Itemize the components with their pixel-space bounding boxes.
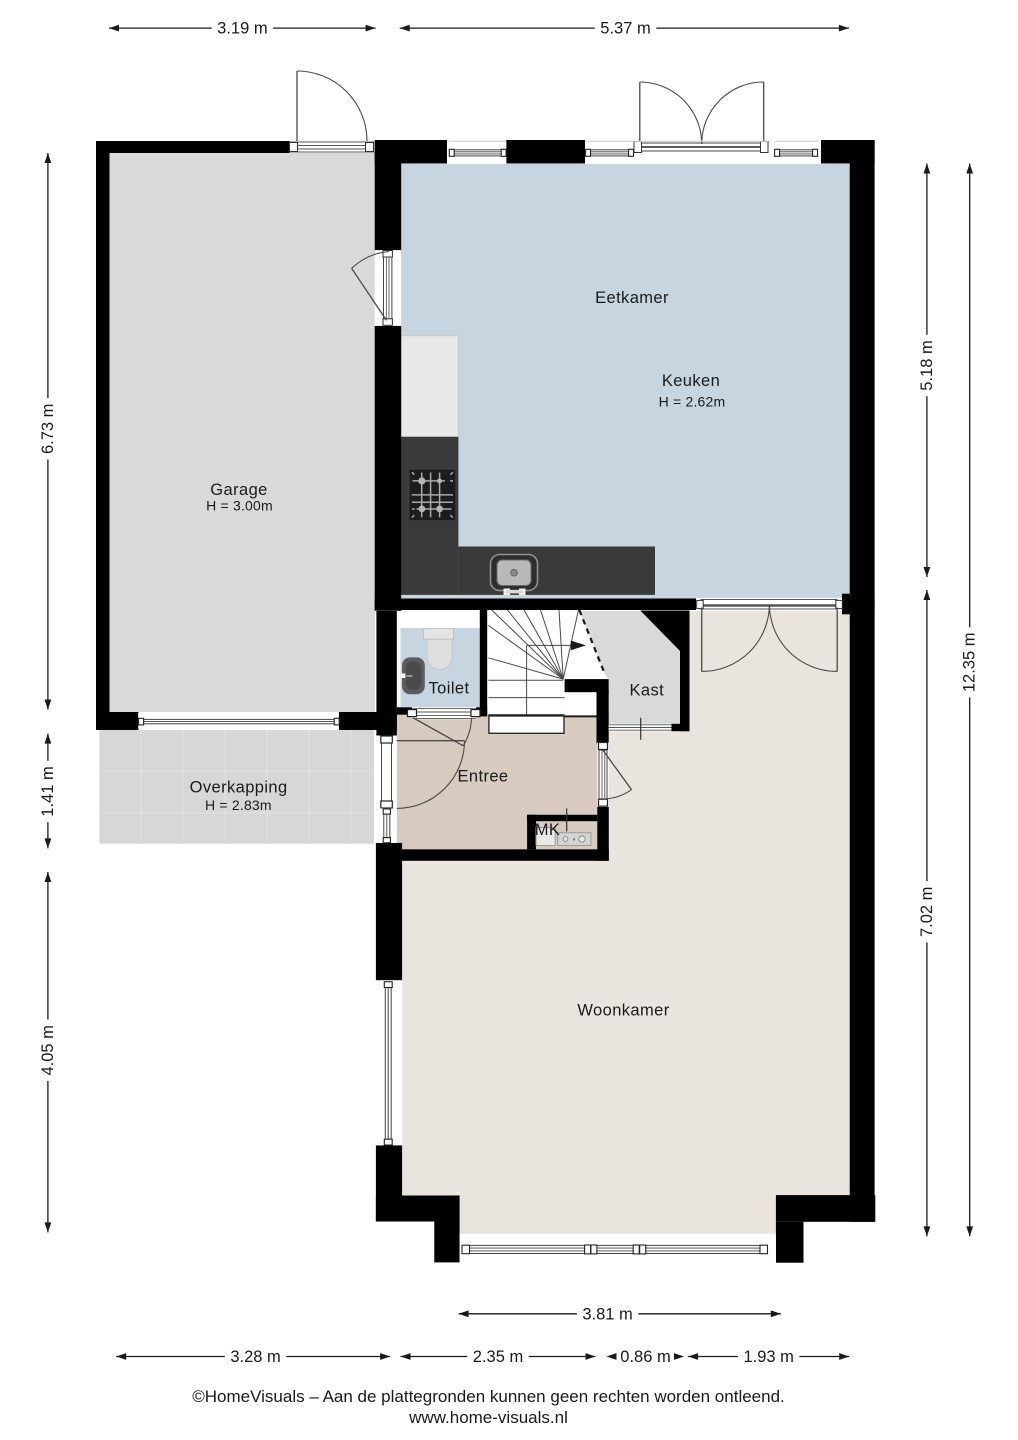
svg-text:3.81 m: 3.81 m xyxy=(582,1305,632,1323)
svg-text:Overkapping: Overkapping xyxy=(190,779,288,797)
svg-text:4.05 m: 4.05 m xyxy=(39,1025,57,1075)
svg-text:Eetkamer: Eetkamer xyxy=(595,289,669,307)
svg-text:H = 3.00m: H = 3.00m xyxy=(206,498,273,514)
svg-text:3.28 m: 3.28 m xyxy=(230,1348,280,1366)
svg-text:MK: MK xyxy=(535,821,561,839)
svg-text:2.35 m: 2.35 m xyxy=(473,1348,523,1366)
svg-text:1.93 m: 1.93 m xyxy=(743,1348,793,1366)
svg-text:6.73 m: 6.73 m xyxy=(39,404,57,454)
svg-text:5.37 m: 5.37 m xyxy=(600,20,650,38)
svg-text:Garage: Garage xyxy=(210,481,267,499)
svg-text:Toilet: Toilet xyxy=(429,680,470,698)
svg-text:H = 2.62m: H = 2.62m xyxy=(659,394,726,410)
svg-text:Kast: Kast xyxy=(629,682,664,700)
svg-text:Entree: Entree xyxy=(457,768,508,786)
svg-text:3.19 m: 3.19 m xyxy=(217,20,267,38)
svg-text:Keuken: Keuken xyxy=(662,372,720,390)
svg-text:7.02 m: 7.02 m xyxy=(918,887,936,937)
svg-text:12.35 m: 12.35 m xyxy=(961,632,979,692)
svg-text:www.home-visuals.nl: www.home-visuals.nl xyxy=(408,1408,568,1427)
svg-text:Woonkamer: Woonkamer xyxy=(577,1002,669,1020)
svg-text:5.18 m: 5.18 m xyxy=(918,340,936,390)
svg-text:©HomeVisuals – Aan de plattegr: ©HomeVisuals – Aan de plattegronden kunn… xyxy=(192,1387,785,1406)
svg-text:0.86 m: 0.86 m xyxy=(620,1348,670,1366)
svg-text:H = 2.83m: H = 2.83m xyxy=(205,797,272,813)
svg-text:1.41 m: 1.41 m xyxy=(39,766,57,816)
